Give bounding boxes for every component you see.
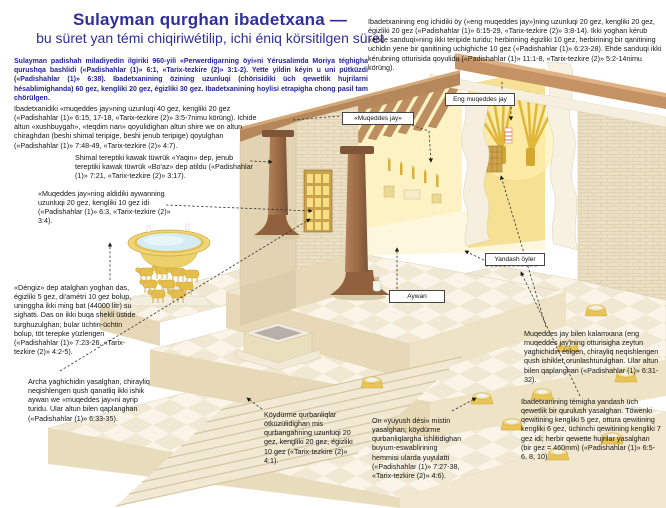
page-subtitle: bu süret yan témi chiqiriwétilip, ichi é… xyxy=(0,30,420,46)
main-door xyxy=(304,170,332,232)
inner-door xyxy=(487,146,502,172)
showbread-table xyxy=(404,190,420,199)
label-side-chambers: Yandash öyler xyxy=(485,253,545,266)
callout-lavers: On «yuyush dési» mistin yasalghan; köydü… xyxy=(372,416,466,480)
callout-side-chambers: Ibadetxanining témigha yandash üch qewet… xyxy=(521,397,661,461)
callout-sea-basin: «Déngiz» dep atalghan yoghan das, égizli… xyxy=(14,283,141,356)
callout-doors: Archa yaghichidin yasalghan, chirayliq n… xyxy=(28,377,156,423)
callout-inner-doors: Muqeddes jay bilen kalamxana (eng muqedd… xyxy=(524,329,662,384)
label-most-holy-place: Eng muqeddes jay xyxy=(445,93,515,106)
callout-bronze-altar: Köydürme qurbanliqlar ötküzülidighan mis… xyxy=(264,410,356,465)
callout-most-holy-place: Ibadetxanining eng ichidiki öy («eng muq… xyxy=(368,17,662,72)
label-holy-place: «Muqeddes jay» xyxy=(342,112,414,125)
callout-holy-place: Ibadetxanidiki «muqeddes jay»ning uzunlu… xyxy=(14,104,266,150)
temple-diagram-page: Sulayman qurghan ibadetxana — bu süret y… xyxy=(0,0,666,508)
intro-paragraph: Sulayman padishah miladiyedin ilgiriki 9… xyxy=(14,57,368,103)
callout-porch: «Muqeddes jay»ning aldidiki aywanning uz… xyxy=(38,189,172,226)
ark-of-covenant xyxy=(505,128,512,143)
side-chambers-wall xyxy=(578,111,666,300)
callout-pillars: Shimal tereptiki kawak tüwrük «Yaqin» de… xyxy=(75,153,253,180)
incense-altar xyxy=(384,186,394,197)
page-title: Sulayman qurghan ibadetxana — xyxy=(0,10,420,30)
label-porch: Aywan xyxy=(389,290,445,303)
temple-interior xyxy=(338,62,578,256)
